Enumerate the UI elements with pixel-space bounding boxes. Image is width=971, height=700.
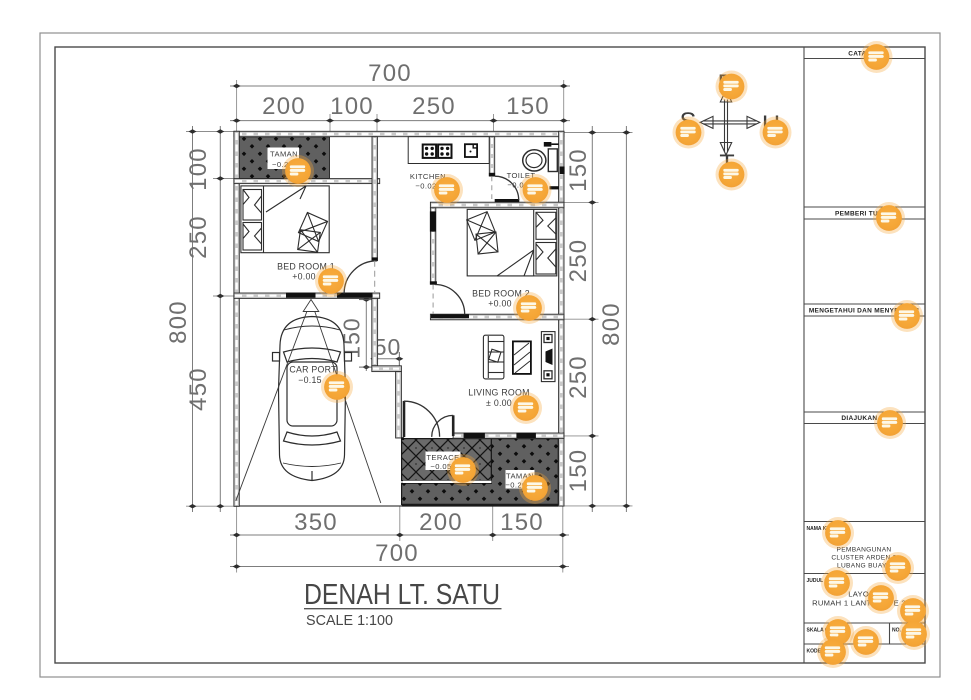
- svg-text:DENAH LT. SATU: DENAH LT. SATU: [304, 579, 500, 611]
- svg-text:700: 700: [375, 540, 419, 567]
- svg-text:150: 150: [565, 148, 592, 192]
- svg-text:350: 350: [294, 509, 338, 536]
- svg-text:± 0.00: ± 0.00: [486, 398, 512, 408]
- svg-text:800: 800: [598, 302, 625, 346]
- svg-text:700: 700: [368, 60, 412, 87]
- svg-text:250: 250: [565, 239, 592, 283]
- svg-text:100: 100: [330, 93, 374, 120]
- svg-text:SCALE 1:100: SCALE 1:100: [306, 613, 393, 629]
- svg-text:150: 150: [500, 509, 544, 536]
- svg-text:150: 150: [565, 449, 592, 493]
- svg-text:450: 450: [185, 367, 212, 411]
- svg-text:250: 250: [565, 355, 592, 399]
- svg-text:200: 200: [419, 509, 463, 536]
- svg-text:PEMBANGUNAN: PEMBANGUNAN: [837, 547, 892, 554]
- svg-text:200: 200: [262, 93, 306, 120]
- svg-text:800: 800: [165, 300, 192, 344]
- svg-text:250: 250: [412, 93, 456, 120]
- svg-text:100: 100: [185, 147, 212, 191]
- svg-text:−0.15: −0.15: [298, 375, 322, 385]
- svg-text:250: 250: [185, 215, 212, 259]
- svg-text:+0.00: +0.00: [292, 272, 316, 282]
- svg-text:150: 150: [506, 93, 550, 120]
- svg-text:+0.00: +0.00: [488, 299, 512, 309]
